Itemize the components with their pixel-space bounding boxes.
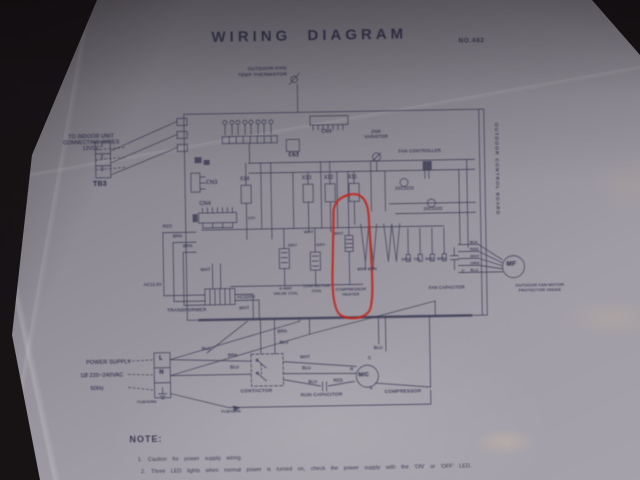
relay-coil-12v-label: 12V	[248, 216, 256, 221]
pin-red-label: RED	[425, 257, 434, 262]
cn4-top-label: CN4	[321, 130, 332, 136]
cn4-left-label: CN4	[199, 201, 211, 208]
motor-wire-red: RED	[470, 247, 479, 252]
photo-of-wiring-diagram: WIRING DIAGRAM NO.482 OUTDOOR PIPE TEMP …	[0, 0, 640, 480]
wire-brn-5: BRN	[278, 330, 288, 335]
indoor-unit-label: TO INDOOR UNIT CONNECTING WIRES 12VDC	[54, 133, 128, 153]
contactor-coil-label: CONTACTOR COIL	[302, 284, 332, 294]
motor-wire-wht: WHT	[470, 254, 479, 259]
relay-x13-label: X13	[302, 176, 312, 182]
diagram-title: WIRING DIAGRAM	[211, 25, 407, 45]
wire-gry-1: GRY	[288, 243, 297, 248]
frequency-label: 50Hz	[91, 386, 104, 393]
wire-blu-4: BLU	[302, 366, 311, 371]
transistor-label-1: 2SC2233	[395, 186, 414, 191]
compressor-motor-label: M/C	[358, 372, 369, 379]
ac220v-label: AC220V	[237, 294, 255, 300]
protector-label: OUTDOOR FAN MOTOR PROTECTOR INSIDE	[511, 283, 569, 293]
wire-blu-5: BLU	[308, 380, 317, 385]
relay-x12-label: X12	[324, 176, 334, 182]
compressor-heater-label: COMPRESSOR HEATER	[331, 287, 371, 297]
wire-blu-2: BLU	[202, 347, 211, 352]
terminal-n-label: N	[159, 370, 164, 377]
tb3-terminal-1: 1	[100, 144, 103, 150]
wire-red-1: RED	[163, 225, 173, 230]
wire-brn-1: BRN	[173, 234, 183, 239]
wire-wht-4: WHT	[334, 232, 344, 237]
pin-orn-label: ORN	[401, 257, 410, 262]
relay-x11-label: X11	[348, 175, 357, 181]
motor-wire-orn: ORN	[470, 261, 479, 266]
tb3-label: TB3	[93, 181, 107, 189]
fan-capacitor-label: FAN CAPACITOR	[429, 285, 465, 291]
wire-ylwgrn-1: YLW/GRN	[137, 400, 157, 405]
fan-cap-c-label: C	[462, 268, 465, 273]
wire-red-2: RED	[333, 379, 343, 384]
motor-wire-blk: BLK	[470, 240, 478, 245]
wire-brn-4: BRN	[228, 353, 238, 358]
contactor-label: CONTACTOR	[241, 389, 273, 395]
voltage-label: 1Ø 220~240VAC	[80, 372, 123, 379]
terminal-l-label: L	[159, 356, 163, 363]
wire-wht-1: WHT	[200, 268, 210, 273]
pin-yel-label: YEL	[413, 257, 421, 262]
thermistor-label: OUTDOOR PIPE TEMP THERMISTOR	[225, 67, 287, 79]
motor-wire-blu: BLU	[471, 268, 479, 273]
wire-gry-2: GRY	[316, 243, 325, 248]
wire-wht-5: WHT	[300, 355, 310, 360]
pin-brn-label: BRN	[437, 257, 446, 262]
cn3-label: CN3	[206, 180, 218, 187]
tb3-terminal-3: 3	[101, 168, 104, 174]
varistor-label: ZNR VARISTOR	[360, 129, 392, 140]
valve-coil-label: 4-WAY VALVE COIL	[269, 286, 303, 296]
ac-low-voltage-label: AC12.5V	[144, 283, 162, 288]
wire-blu-6: BLU	[374, 346, 383, 351]
cn2-label: CN2	[288, 153, 299, 159]
wire-blu-1: BLU	[230, 365, 239, 370]
run-capacitor-label: RUN CAPACITOR	[301, 393, 343, 399]
fan-controller-label: FAN CONTROLLER	[398, 148, 441, 154]
terminal-s-label: S	[370, 386, 373, 391]
wire-wht-3: WHT	[304, 230, 314, 235]
transformer-label: TRANSFORMER	[167, 308, 206, 314]
transistor-label-2: 2SC2233	[423, 207, 442, 212]
power-supply-label: POWER SUPPLY	[86, 359, 131, 366]
terminal-c-label: C	[368, 356, 371, 361]
diagram-content: WIRING DIAGRAM NO.482 OUTDOOR PIPE TEMP …	[0, 0, 640, 480]
wire-brn-2: BRN	[183, 244, 193, 249]
wire-brn-pair: BRN BRN	[357, 267, 376, 272]
fan-motor-label: MF	[506, 261, 516, 269]
relay-x14-label: X14	[240, 177, 250, 183]
wiring-lines	[0, 0, 640, 480]
terminal-r-label: R	[350, 367, 353, 372]
wire-wht-2: WHT	[239, 306, 249, 311]
paper: WIRING DIAGRAM NO.482 OUTDOOR PIPE TEMP …	[0, 0, 640, 480]
compressor-label: COMPRESSOR	[385, 389, 422, 395]
document-number: NO.482	[458, 37, 484, 44]
wire-ylwgrn-2: YLW/GRN	[221, 409, 241, 414]
note-heading: NOTE:	[129, 434, 162, 445]
tb3-terminal-2: 2	[100, 156, 103, 162]
wire-blu-3: BLU	[280, 341, 289, 346]
